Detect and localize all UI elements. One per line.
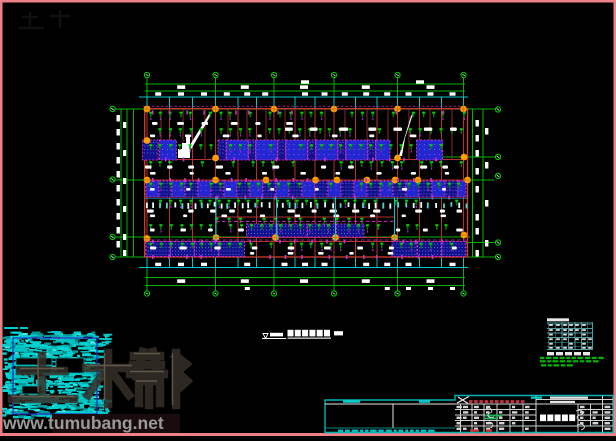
svg-text:www.tumubang.net: www.tumubang.net (2, 413, 164, 433)
